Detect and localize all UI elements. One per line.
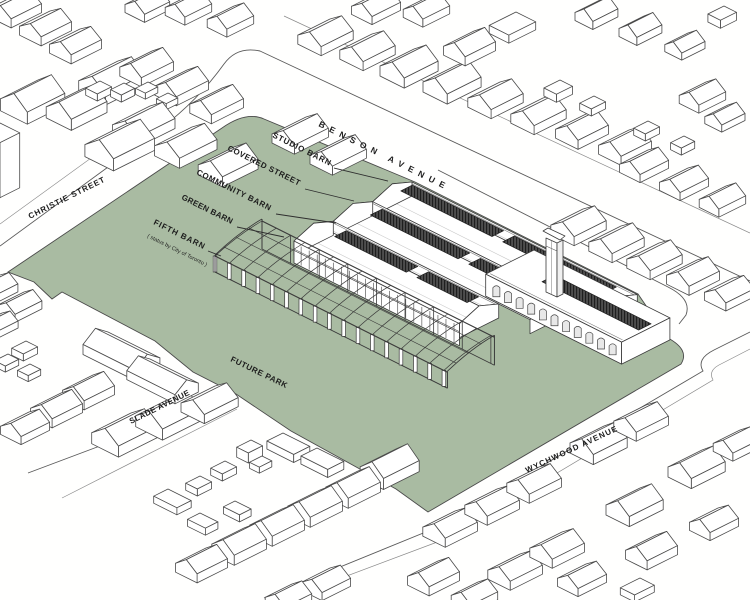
pier: [313, 306, 317, 322]
pier: [399, 349, 403, 365]
site-axonometric-drawing: STUDIO BARN COVERED STREET COMMUNITY BAR…: [0, 0, 750, 600]
pier: [428, 363, 432, 379]
pier: [442, 370, 446, 386]
pier: [356, 328, 360, 344]
chimney: [543, 228, 565, 297]
arched-opening: [516, 297, 523, 308]
arched-opening: [504, 292, 511, 303]
pier: [371, 335, 375, 351]
arched-opening: [574, 326, 581, 337]
pier: [242, 270, 246, 286]
arched-opening: [528, 303, 535, 314]
arched-opening: [563, 321, 570, 332]
pier: [270, 285, 274, 301]
arched-opening: [597, 338, 604, 349]
arched-opening: [609, 344, 616, 355]
scene: [0, 0, 750, 600]
pier: [414, 356, 418, 372]
shape: [0, 133, 20, 198]
pier: [342, 320, 346, 336]
pier: [256, 278, 260, 294]
pier: [285, 292, 289, 308]
arched-opening: [586, 332, 593, 343]
site-plan-stage: STUDIO BARN COVERED STREET COMMUNITY BAR…: [0, 0, 750, 600]
pier: [328, 313, 332, 329]
arched-opening: [493, 286, 500, 297]
arched-opening: [551, 315, 558, 326]
shape: [557, 240, 563, 297]
pier: [299, 299, 303, 315]
arched-opening: [539, 309, 546, 320]
pier: [228, 263, 232, 279]
pier: [385, 342, 389, 358]
